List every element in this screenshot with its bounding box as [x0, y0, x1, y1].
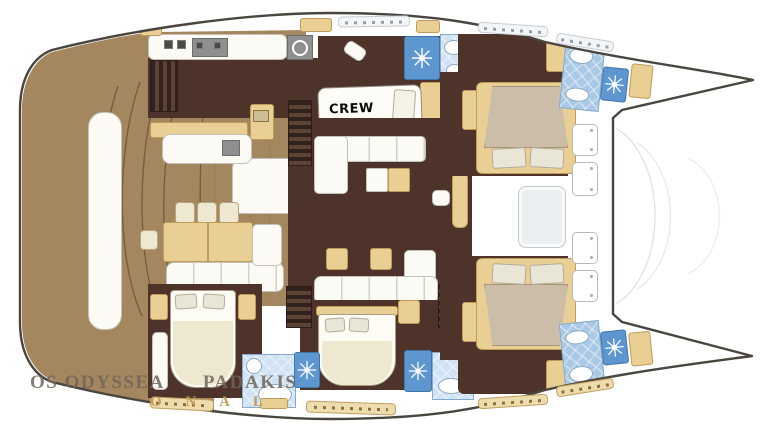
- pillow: [491, 147, 526, 169]
- shower: [294, 352, 320, 388]
- shower-starburst-icon: [604, 74, 626, 96]
- trampoline: [616, 128, 720, 304]
- cockpit-sofa-corner: [252, 224, 282, 266]
- galley-cabinet: [140, 22, 162, 36]
- wardrobe: [628, 63, 653, 99]
- stove-burner-icon: [214, 42, 221, 49]
- shower-starburst-icon: [408, 361, 428, 381]
- companionway-stairs: [288, 100, 312, 166]
- galley-stairs: [150, 60, 178, 112]
- bed: [318, 314, 396, 386]
- bar-sink-icon: [222, 140, 240, 156]
- galley-sink-icon: [164, 40, 173, 49]
- cockpit-bench: [88, 112, 122, 330]
- grill-icon: [253, 110, 269, 122]
- yacht-floor-plan: CREW: [0, 0, 768, 432]
- side-table: [432, 190, 450, 206]
- salon-sofa-chaise: [314, 136, 348, 194]
- deck-hatch-icon: [572, 270, 598, 302]
- coffee-table: [388, 168, 410, 192]
- watermark: OS ODYSSEA PADAKIS: [30, 372, 297, 394]
- pillow: [203, 293, 226, 309]
- deck-hatch-icon: [572, 232, 598, 264]
- pillow: [529, 147, 564, 169]
- wardrobe: [628, 331, 653, 367]
- window-strip: [338, 15, 410, 27]
- bathroom-forward-top: [558, 40, 657, 123]
- deck-locker: [416, 20, 440, 33]
- nightstand: [150, 294, 168, 320]
- deck-locker: [300, 18, 332, 32]
- shower: [404, 350, 432, 392]
- galley-sink-icon: [177, 40, 186, 49]
- pillow: [325, 317, 346, 332]
- watermark-line2: O N A L: [150, 394, 273, 411]
- pillow: [529, 263, 564, 285]
- window-strip: [306, 400, 396, 415]
- shower: [600, 329, 629, 366]
- nightstand: [238, 294, 256, 320]
- watermark-part1: OS ODYSSEA: [30, 372, 165, 394]
- stove-burner-icon: [196, 42, 203, 49]
- cockpit-chair: [140, 230, 158, 250]
- crew-bed-label: CREW: [319, 100, 374, 117]
- deck-hatch-icon: [572, 124, 598, 156]
- deck-hatch-icon: [572, 162, 598, 196]
- pillow: [175, 293, 198, 309]
- galley-vent-icon: [292, 40, 308, 56]
- cockpit-chair: [219, 202, 239, 224]
- cockpit-chair: [175, 202, 195, 224]
- salon-cabinet: [452, 172, 468, 228]
- ottoman: [326, 248, 348, 270]
- pillow: [491, 263, 526, 285]
- cockpit-chair: [197, 202, 217, 224]
- crew-shower: [404, 36, 440, 80]
- watermark-part2: PADAKIS: [203, 372, 298, 394]
- shower-starburst-icon: [297, 360, 317, 380]
- ottoman: [370, 248, 392, 270]
- cockpit-table: [163, 222, 253, 262]
- duvet: [322, 341, 392, 385]
- pillow: [349, 317, 370, 332]
- window-strip: [478, 394, 549, 410]
- stairs: [286, 286, 312, 328]
- coffee-table: [366, 168, 388, 192]
- island-bed: [484, 86, 568, 148]
- shower-starburst-icon: [604, 336, 626, 358]
- skylight: [518, 186, 566, 248]
- nightstand: [398, 300, 420, 324]
- island-bed: [484, 284, 568, 346]
- shower-starburst-icon: [411, 47, 433, 69]
- shower: [600, 66, 629, 103]
